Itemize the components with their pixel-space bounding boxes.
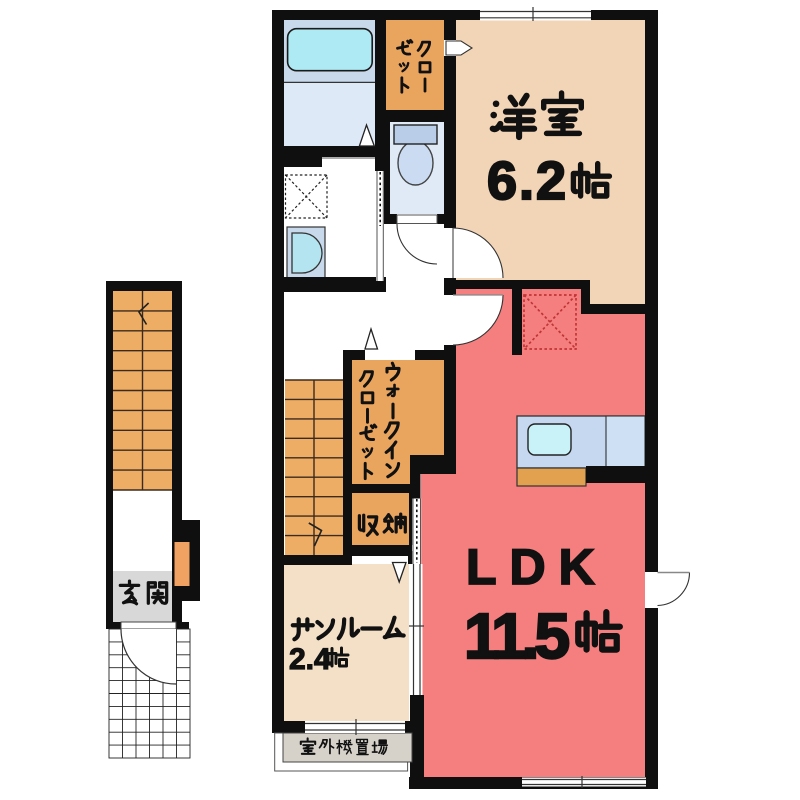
svg-text:6.2: 6.2 bbox=[487, 151, 568, 211]
svg-text:LDK: LDK bbox=[466, 539, 608, 595]
svg-text:2.4: 2.4 bbox=[289, 643, 331, 676]
svg-text:11.5: 11.5 bbox=[464, 600, 568, 672]
